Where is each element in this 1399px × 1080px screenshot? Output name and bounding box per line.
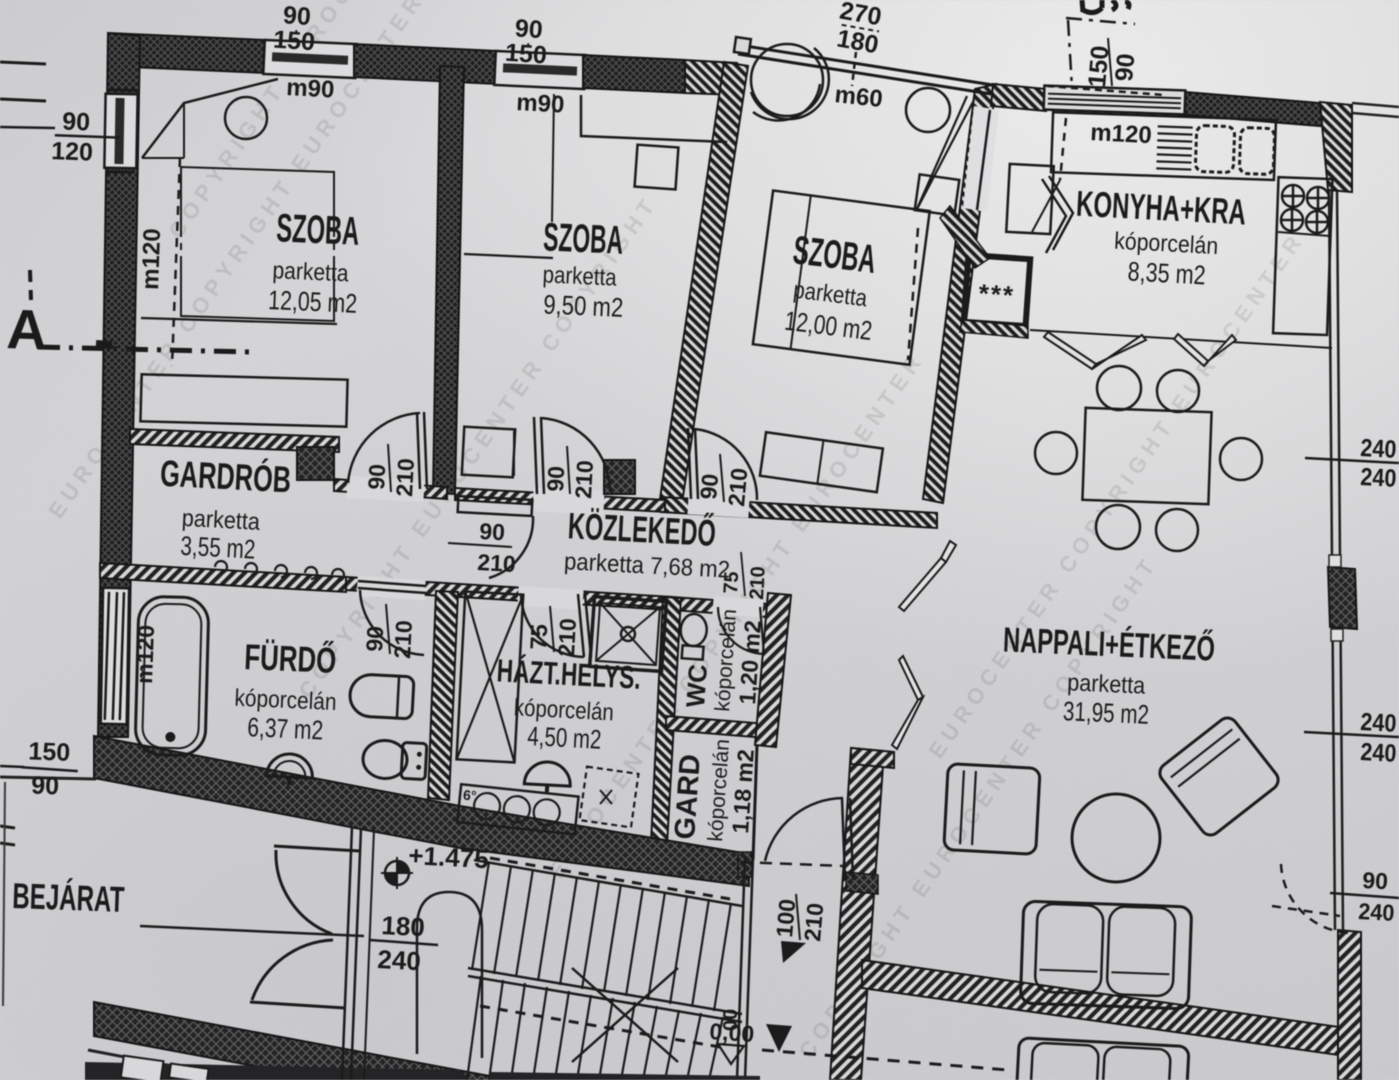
svg-text:BEJÁRAT: BEJÁRAT [12,875,125,920]
svg-text:210: 210 [570,460,598,500]
svg-text:210: 210 [477,549,517,577]
svg-text:KÖZLEKEDŐ: KÖZLEKEDŐ [567,504,717,554]
svg-text:180: 180 [381,910,426,942]
svg-text:6,37 m2: 6,37 m2 [247,712,324,745]
svg-text:240: 240 [1360,434,1397,464]
svg-text:210: 210 [553,618,581,658]
svg-text:9,50 m2: 9,50 m2 [543,289,624,322]
svg-text:90: 90 [1110,52,1140,82]
svg-text:210: 210 [723,467,752,507]
svg-text:210: 210 [799,902,828,942]
svg-text:150: 150 [272,26,316,57]
svg-text:00: 00 [720,1009,742,1031]
svg-text:m90: m90 [516,89,565,118]
svg-text:8,35 m2: 8,35 m2 [1127,256,1206,290]
svg-text:parketta: parketta [542,261,618,291]
svg-text:SZOBA: SZOBA [275,206,360,254]
svg-text:240: 240 [1360,463,1397,493]
svg-text:31,95 m2: 31,95 m2 [1062,696,1149,730]
svg-text:m120: m120 [131,624,159,684]
svg-text:m120: m120 [137,228,166,290]
svg-text:kóporcelán: kóporcelán [1114,228,1219,260]
svg-text:***: *** [978,278,1016,310]
svg-text:FÜRDŐ: FÜRDŐ [244,635,338,681]
svg-text:240: 240 [377,944,422,976]
svg-text:parketta: parketta [272,257,350,287]
svg-text:240: 240 [1360,708,1397,738]
svg-text:m120: m120 [1090,119,1153,149]
svg-text:parketta: parketta [1067,669,1147,699]
svg-text:210: 210 [746,566,770,600]
svg-text:90: 90 [363,463,390,490]
svg-text:6°: 6° [462,787,477,804]
svg-text:WC: WC [680,663,713,709]
svg-text:210: 210 [389,620,417,660]
svg-text:4,50 m2: 4,50 m2 [527,721,602,755]
svg-text:3,55 m2: 3,55 m2 [180,531,256,565]
svg-text:90: 90 [361,625,388,652]
svg-text:90: 90 [695,473,723,501]
svg-text:75: 75 [525,623,552,650]
svg-text:90: 90 [62,108,91,137]
svg-text:90: 90 [31,772,60,801]
svg-text:12,05 m2: 12,05 m2 [268,285,358,319]
svg-text:SZOBA: SZOBA [542,215,624,262]
svg-text:90: 90 [1362,867,1389,894]
svg-text:210: 210 [391,458,419,498]
svg-text:GARDRÓB: GARDRÓB [159,452,292,501]
svg-text:A: A [6,297,49,361]
svg-text:m90: m90 [286,74,335,103]
svg-text:150: 150 [28,737,71,766]
svg-text:+1.475: +1.475 [408,840,490,874]
svg-text:HÁZT.HELYS.: HÁZT.HELYS. [496,652,642,695]
svg-text:m60: m60 [833,81,884,113]
svg-text:120: 120 [51,137,94,166]
svg-text:150: 150 [504,39,548,70]
svg-text:GARD: GARD [669,753,707,840]
svg-text:240: 240 [1360,738,1397,768]
svg-text:90: 90 [479,518,506,545]
svg-text:240: 240 [1358,898,1395,926]
svg-text:90: 90 [542,465,569,492]
